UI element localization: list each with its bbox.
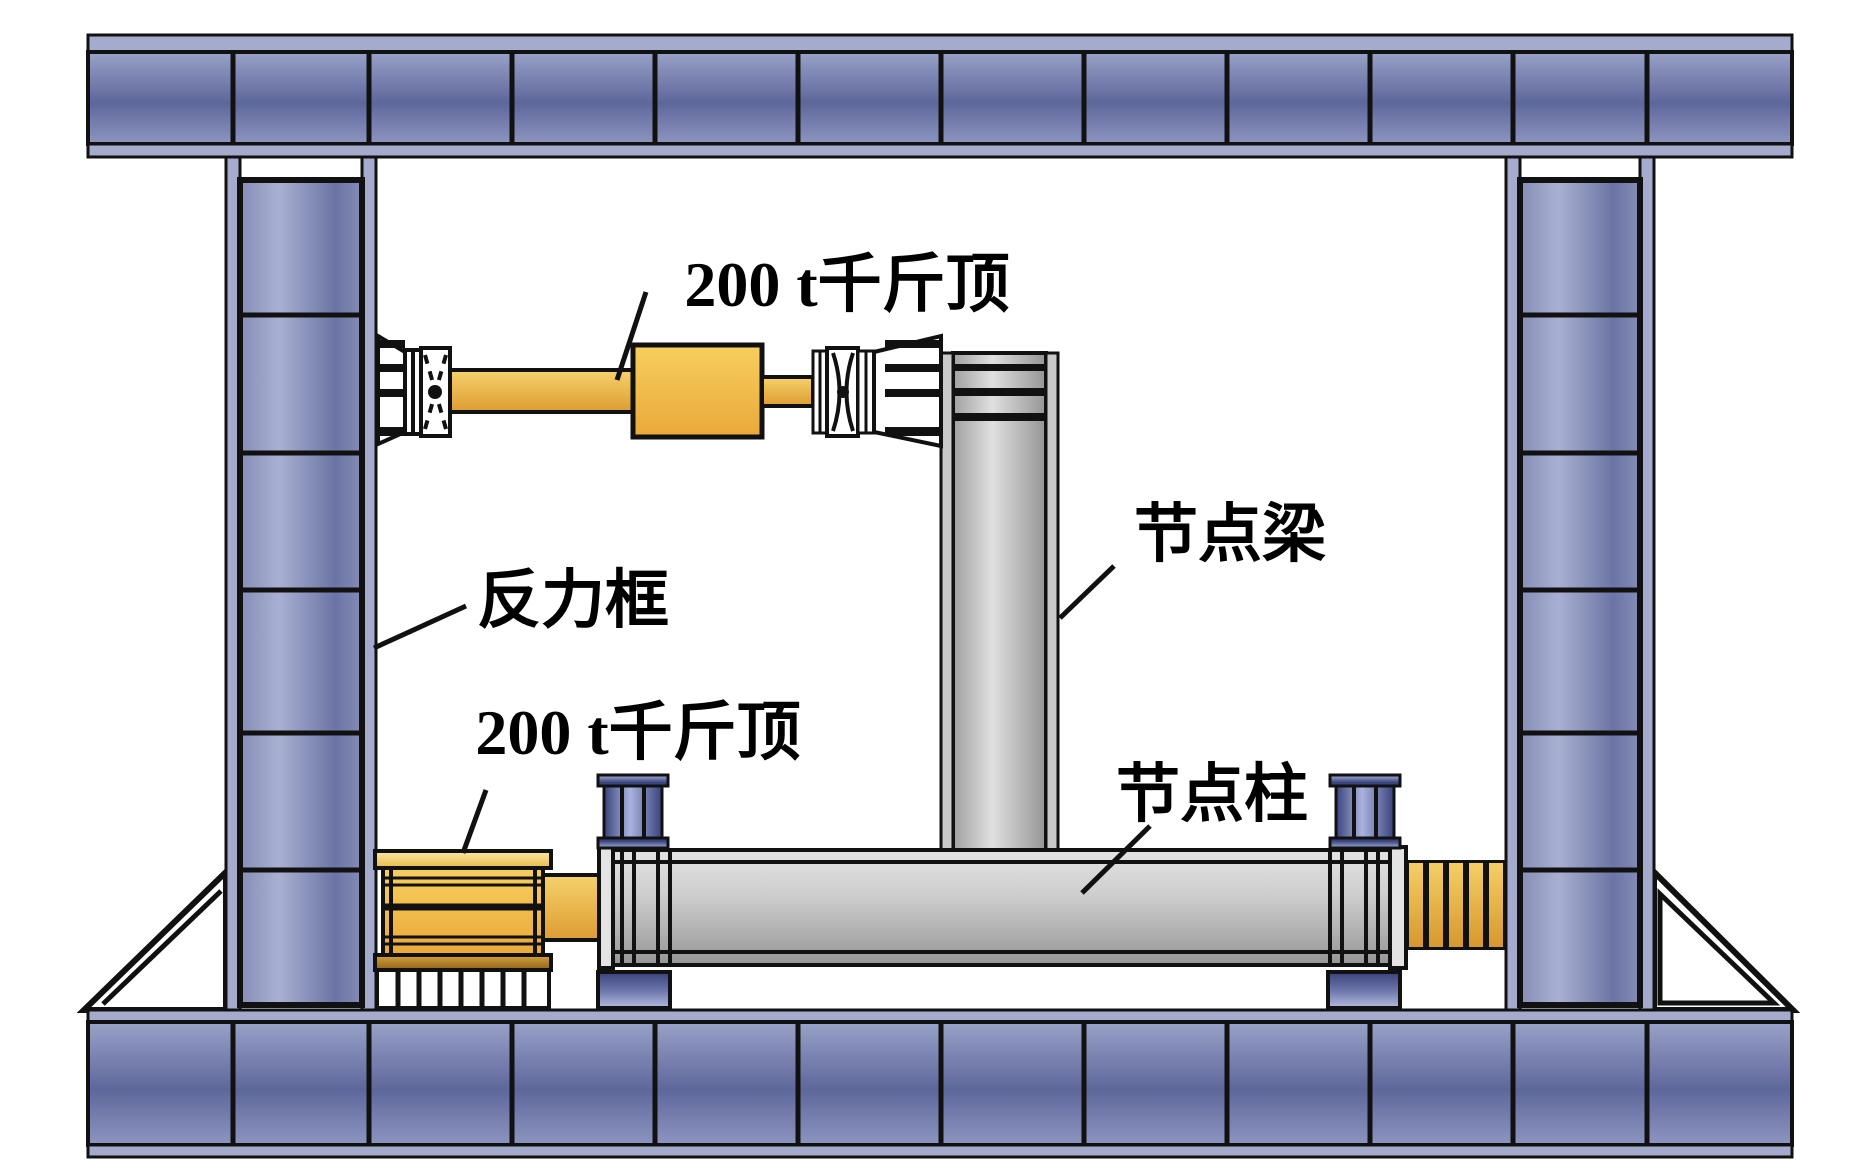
top-jack-piston	[762, 377, 813, 406]
joint-column-body	[613, 850, 1390, 965]
top-jack-cylinder	[633, 345, 762, 437]
top-jack-right-swivel	[827, 348, 858, 436]
joint-column-left-end-plate	[599, 847, 613, 968]
label-joint-column: 节点柱	[1116, 759, 1308, 830]
bottom-beam-bottom-flange	[88, 1145, 1792, 1157]
spool-right-top-flange	[1330, 775, 1400, 786]
spool-left-body	[604, 786, 662, 838]
support-block-left	[598, 972, 670, 1008]
joint-column-right-end-plate	[1390, 847, 1406, 968]
diagram-stage: 200 t千斤顶 反力框 200 t千斤顶 节点梁 节点柱	[0, 0, 1869, 1171]
top-jack-rod	[450, 370, 633, 412]
bottom-jack-cylinder	[383, 868, 543, 955]
joint-column-specimen	[599, 847, 1406, 968]
support-block-right	[1328, 972, 1400, 1008]
support-spool-right	[1330, 775, 1400, 848]
reaction-frame-left-column	[226, 157, 376, 1010]
bottom-jack-piston	[543, 875, 599, 940]
label-top-jack: 200 t千斤顶	[684, 249, 1009, 320]
support-spool-left	[598, 775, 668, 848]
spool-left-top-flange	[598, 775, 668, 786]
toothed-pad-teeth	[398, 970, 524, 1008]
bottom-jack-top-cap	[375, 851, 551, 868]
spool-left-bottom-flange	[598, 838, 668, 848]
joint-beam-right-flange	[1046, 353, 1058, 850]
ribbed-spacer	[1406, 860, 1506, 950]
reaction-frame-top-beam	[88, 35, 1792, 157]
reaction-frame-right-column	[1506, 157, 1654, 1010]
spool-right-bottom-flange	[1330, 838, 1400, 848]
top-beam-top-flange	[88, 35, 1792, 52]
toothed-base-pad	[377, 970, 549, 1008]
top-jack-left-swivel	[421, 348, 450, 436]
top-beam-bottom-flange	[88, 144, 1792, 157]
reaction-frame-bottom-beam	[88, 1010, 1792, 1157]
label-reaction-frame: 反力框	[477, 565, 669, 636]
joint-beam-web	[953, 353, 1046, 850]
spool-right-body	[1336, 786, 1394, 838]
label-joint-beam: 节点梁	[1134, 499, 1326, 570]
structural-test-diagram: 200 t千斤顶 反力框 200 t千斤顶 节点梁 节点柱	[0, 0, 1869, 1171]
label-bottom-jack: 200 t千斤顶	[475, 697, 800, 768]
joint-beam-specimen	[941, 353, 1058, 850]
bottom-jack-bottom-cap	[375, 955, 551, 970]
